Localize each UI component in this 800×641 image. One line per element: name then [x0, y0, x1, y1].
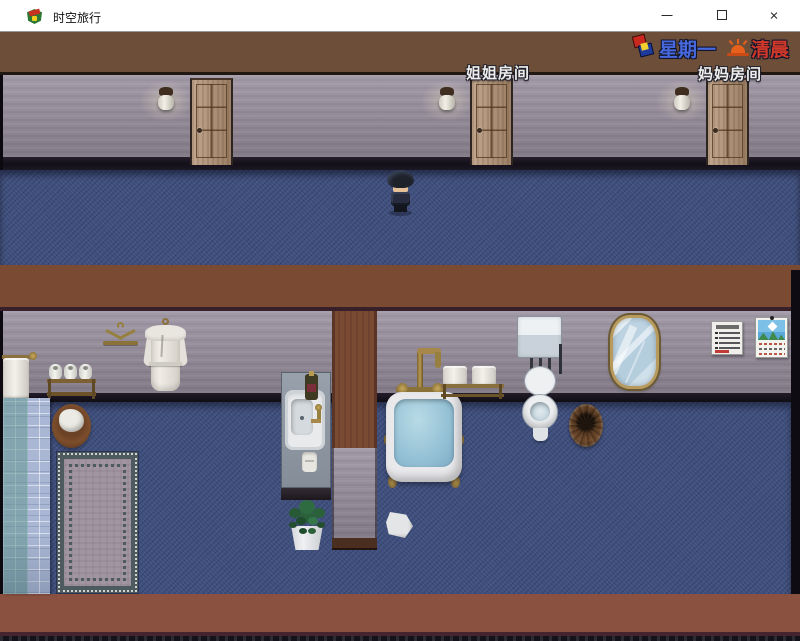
plant-pot	[289, 526, 325, 550]
character-body	[391, 192, 410, 206]
door-knob	[477, 128, 482, 133]
tub-water	[394, 399, 454, 467]
lamp-shade	[674, 95, 690, 110]
calendar-row	[759, 343, 785, 345]
titlebar[interactable]: 时空旅行 ×	[0, 0, 800, 32]
door-knob	[197, 128, 202, 133]
tank-body	[517, 316, 562, 358]
hanger-bar	[103, 341, 138, 345]
player-character	[386, 168, 415, 216]
hud-time-label: 清晨	[751, 35, 789, 62]
wall-calendar	[755, 317, 788, 358]
plant-leaves	[299, 500, 315, 514]
hanging-towel	[3, 358, 29, 400]
hanger-hook	[117, 322, 124, 329]
lamp-shade	[158, 95, 174, 110]
middle-wall-band	[0, 265, 800, 311]
bucket-body	[569, 404, 603, 447]
toilet-paper-shelf	[47, 362, 96, 400]
character-hair	[387, 170, 414, 188]
wall-lamp-1	[155, 87, 177, 114]
sun-ray	[737, 39, 739, 44]
bathrobe	[145, 318, 186, 394]
room-divider-lower	[332, 448, 377, 538]
towel-rail-end	[29, 352, 37, 360]
sink-vanity	[281, 372, 331, 500]
wall-mirror	[610, 315, 659, 389]
door-hall[interactable]	[190, 78, 233, 165]
app-icon-dot	[32, 16, 37, 21]
hanger-arm	[118, 329, 135, 340]
wall-lamp-2	[436, 87, 458, 114]
shelf-bar	[441, 384, 504, 388]
bottom-wall-band	[0, 594, 800, 632]
shelf-bar	[441, 394, 504, 397]
toilet-paper-roll	[64, 364, 77, 380]
calendar-row	[759, 353, 785, 355]
shelf-leg	[443, 384, 446, 399]
bottle-label	[307, 384, 316, 392]
bottle-cap	[309, 371, 314, 376]
laundry-basket	[52, 404, 91, 450]
right-edge-shadow	[791, 270, 800, 594]
hud-day-label: 星期一	[659, 35, 716, 62]
clothes-hanger	[103, 322, 138, 347]
sun-horizon	[727, 53, 749, 56]
shower-tile-area	[3, 398, 50, 594]
notice-paper	[711, 321, 743, 355]
notice-bullets	[715, 332, 718, 350]
minimize-icon	[662, 15, 673, 16]
potted-plant	[283, 498, 331, 552]
door-panels	[196, 84, 227, 158]
shelf-leg	[92, 379, 95, 399]
room-divider-cap	[332, 538, 377, 550]
toilet-lid	[524, 366, 556, 396]
basket-laundry	[59, 409, 84, 432]
bath-rug	[57, 452, 138, 593]
label-mother-room: 妈妈房间	[682, 63, 778, 84]
toilet-paper-roll	[49, 364, 62, 380]
app-window: 时空旅行 ×	[0, 0, 800, 641]
character-legs	[394, 205, 407, 212]
toilet	[521, 366, 560, 442]
door-knob	[713, 128, 718, 133]
sun-ray	[729, 40, 734, 45]
sun-half-disc	[731, 45, 745, 53]
maximize-button[interactable]	[696, 0, 748, 31]
robe-belt	[149, 362, 182, 366]
shelf-leg	[48, 379, 51, 399]
left-edge-shadow-upper	[0, 75, 3, 170]
bottom-dark-strip	[0, 636, 800, 641]
notice-red-line	[715, 350, 729, 353]
maximize-icon	[717, 10, 727, 20]
close-button[interactable]: ×	[748, 0, 800, 31]
toilet-paper-roll	[79, 364, 92, 380]
sink-basin	[291, 399, 313, 435]
room-divider-wall	[332, 311, 377, 448]
toilet-base	[533, 428, 548, 441]
robe-shoulders	[145, 325, 186, 341]
wall-towel-rack	[2, 352, 40, 402]
towel-shelf	[441, 366, 504, 400]
toilet-bowl-inner	[530, 402, 550, 421]
bathtub	[386, 392, 462, 496]
shelf-bar	[47, 379, 96, 383]
calendar-row	[759, 348, 785, 350]
door-mother-room[interactable]	[706, 78, 749, 165]
minimize-button[interactable]	[641, 0, 693, 31]
robe-hook	[162, 318, 169, 325]
folded-towel	[443, 366, 467, 386]
shelf-bar	[47, 392, 96, 396]
game-viewport[interactable]: 姐姐房间 妈妈房间 星期一 清晨	[0, 32, 800, 641]
sink-faucet-spout	[311, 419, 321, 423]
door-panels	[712, 84, 743, 158]
close-icon: ×	[770, 8, 779, 23]
label-sister-room: 姐姐房间	[450, 62, 546, 83]
faucet-pipe	[417, 350, 423, 390]
door-panels	[476, 84, 507, 158]
notice-lines	[719, 332, 740, 350]
wall-lamp-3	[671, 87, 693, 114]
shelf-leg	[499, 384, 502, 399]
shampoo-bottle	[305, 374, 318, 400]
door-sister-room[interactable]	[470, 78, 513, 165]
notice-header	[716, 325, 739, 329]
soap-bar	[302, 452, 317, 472]
sun-ray	[743, 40, 748, 45]
lamp-shade	[439, 95, 455, 110]
wooden-bucket	[569, 402, 603, 448]
folded-towel	[472, 366, 496, 386]
calendar-picture	[758, 320, 785, 340]
app-icon	[26, 8, 43, 25]
sunrise-icon	[727, 39, 749, 56]
window-title: 时空旅行	[53, 9, 101, 26]
calendar-dice-icon	[632, 34, 656, 58]
